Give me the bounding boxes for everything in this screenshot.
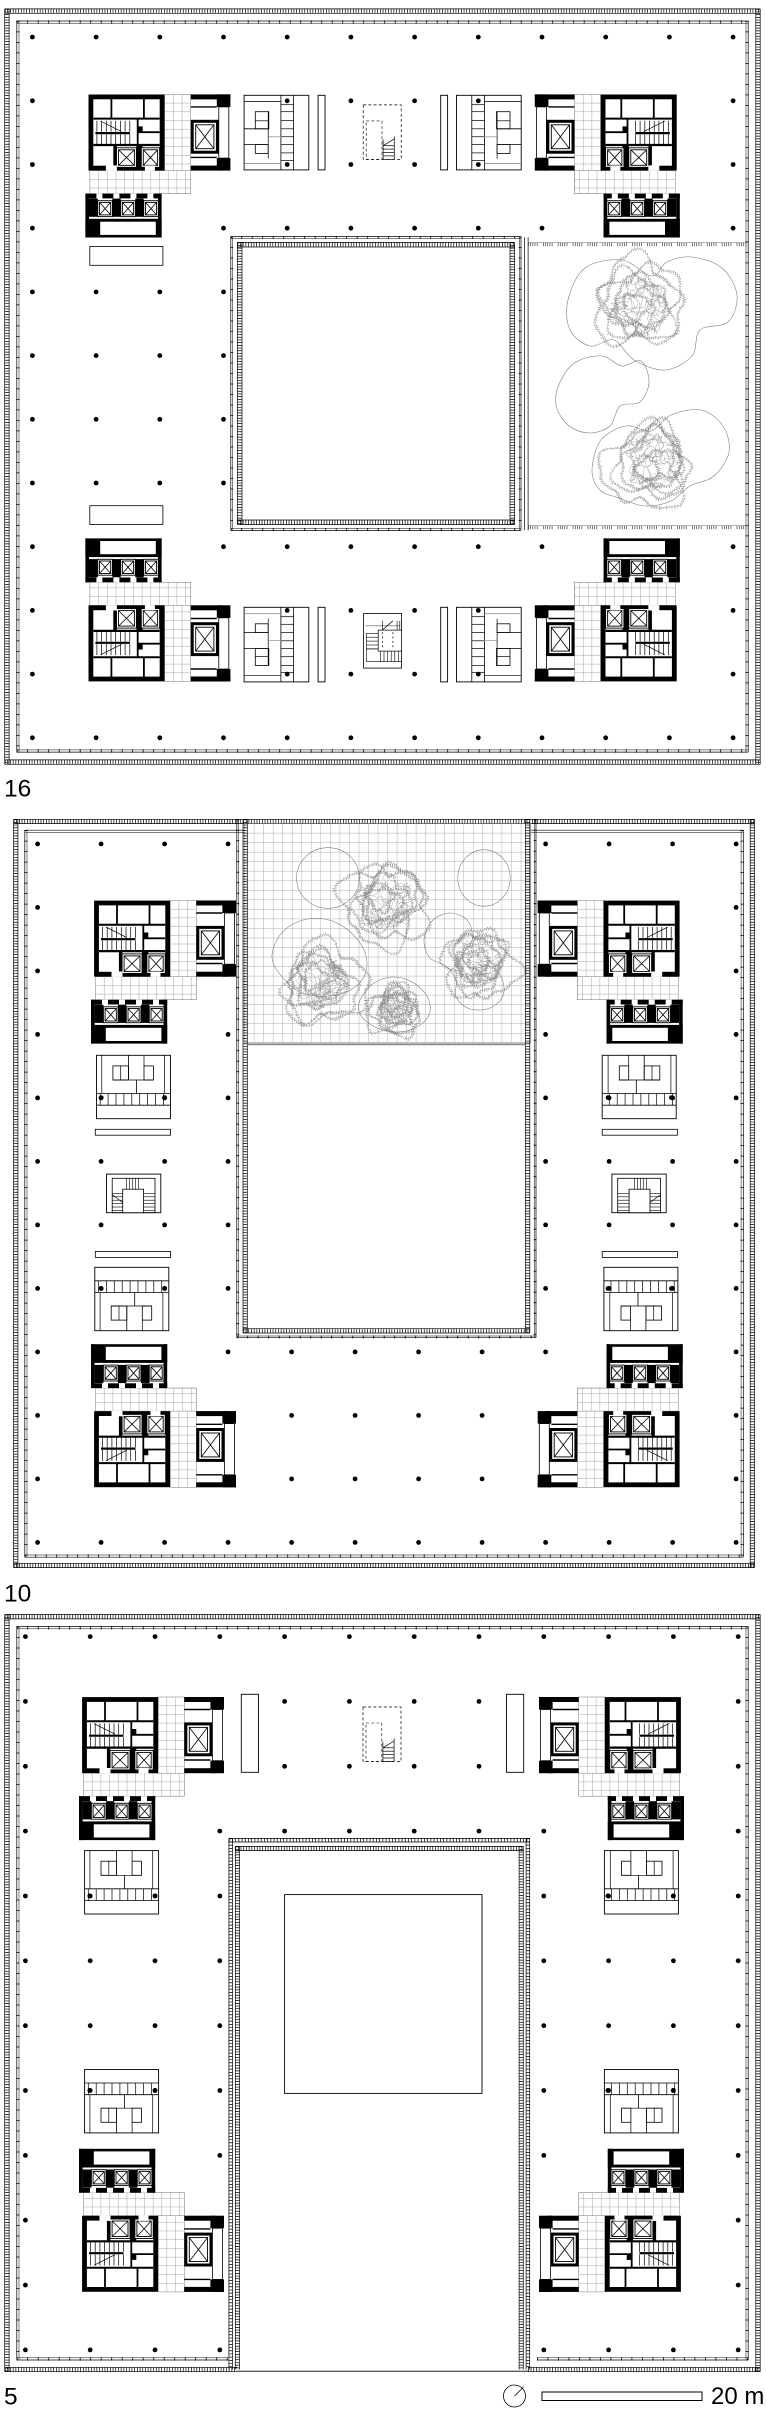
- svg-text:5: 5: [4, 2384, 18, 2410]
- svg-text:10: 10: [4, 1581, 31, 1608]
- svg-text:20 m: 20 m: [711, 2383, 764, 2410]
- svg-text:16: 16: [4, 776, 31, 803]
